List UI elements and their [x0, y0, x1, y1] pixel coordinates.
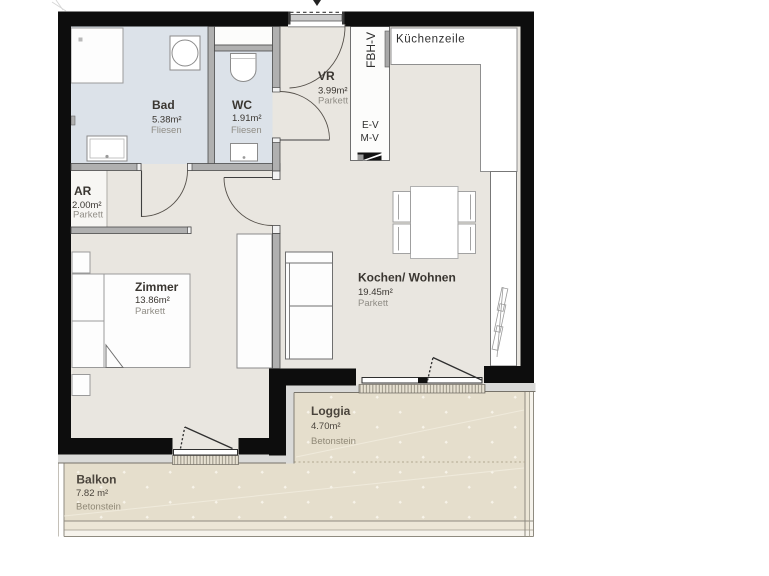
svg-text:Kochen/ Wohnen: Kochen/ Wohnen [358, 270, 456, 284]
svg-text:7.82 m²: 7.82 m² [76, 488, 108, 499]
svg-text:Zimmer: Zimmer [135, 280, 179, 294]
svg-text:FBH-V: FBH-V [364, 32, 378, 68]
svg-text:WC: WC [232, 98, 252, 112]
svg-text:Küchenzeile: Küchenzeile [396, 34, 465, 46]
svg-text:M-V: M-V [361, 133, 380, 144]
svg-text:Balkon: Balkon [76, 473, 116, 487]
svg-text:Parkett: Parkett [135, 306, 165, 317]
svg-text:Parkett: Parkett [73, 209, 103, 220]
svg-text:E-V: E-V [362, 120, 379, 131]
svg-text:Bad: Bad [152, 98, 175, 112]
svg-text:13.86m²: 13.86m² [135, 295, 170, 306]
svg-text:Betonstein: Betonstein [311, 436, 356, 447]
svg-text:1.91m²: 1.91m² [232, 113, 262, 124]
svg-text:4.70m²: 4.70m² [311, 421, 341, 432]
svg-text:Parkett: Parkett [358, 298, 388, 309]
svg-text:Loggia: Loggia [311, 404, 351, 418]
svg-text:AR: AR [74, 184, 92, 198]
svg-text:VR: VR [318, 69, 335, 83]
svg-text:Fliesen: Fliesen [151, 125, 182, 136]
svg-text:5.38m²: 5.38m² [152, 114, 182, 125]
svg-text:19.45m²: 19.45m² [358, 287, 393, 298]
svg-text:Fliesen: Fliesen [231, 125, 262, 136]
svg-text:Betonstein: Betonstein [76, 501, 121, 512]
svg-text:Parkett: Parkett [318, 96, 348, 107]
